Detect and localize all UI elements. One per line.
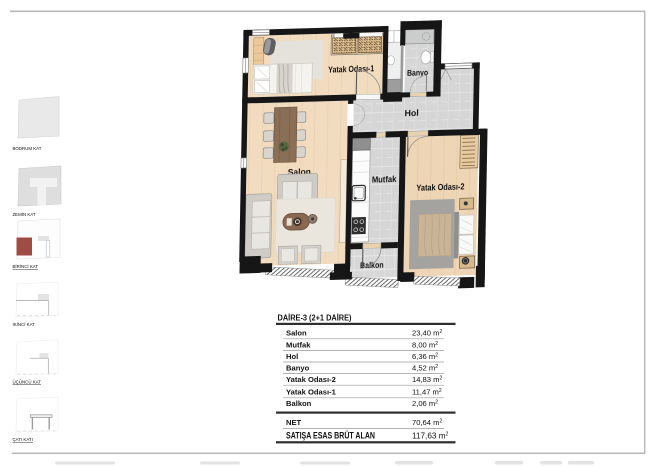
svg-text:Hol: Hol: [404, 108, 418, 118]
svg-text:Banyo: Banyo: [407, 67, 428, 78]
svg-text:11,47 m2: 11,47 m2: [412, 388, 442, 397]
svg-text:14,83 m2: 14,83 m2: [412, 375, 442, 384]
svg-text:23,40 m2: 23,40 m2: [412, 329, 442, 338]
svg-text:BİRİNCİ KAT: BİRİNCİ KAT: [13, 264, 39, 269]
svg-text:SATIŞA ESAS BRÜT ALAN: SATIŞA ESAS BRÜT ALAN: [286, 430, 375, 440]
svg-text:4,52 m2: 4,52 m2: [412, 364, 438, 373]
svg-text:ZEMİN KAT: ZEMİN KAT: [13, 212, 36, 217]
svg-text:2,06 m2: 2,06 m2: [412, 399, 438, 408]
svg-text:8,00 m2: 8,00 m2: [412, 340, 438, 349]
svg-text:70,64 m2: 70,64 m2: [412, 418, 442, 427]
svg-text:Salon: Salon: [286, 329, 307, 338]
svg-text:Balkon: Balkon: [360, 260, 384, 271]
svg-text:Yatak Odası-1: Yatak Odası-1: [286, 388, 337, 397]
svg-text:Mutfak: Mutfak: [372, 174, 397, 185]
svg-text:NET: NET: [286, 418, 302, 427]
svg-text:Yatak Odası-2: Yatak Odası-2: [416, 181, 464, 192]
svg-text:Banyo: Banyo: [286, 364, 310, 373]
svg-text:BODRUM KAT: BODRUM KAT: [13, 146, 42, 151]
svg-text:Hol: Hol: [286, 352, 298, 361]
svg-text:Yatak Odası-2: Yatak Odası-2: [286, 375, 336, 384]
svg-text:6,36 m2: 6,36 m2: [412, 352, 438, 361]
svg-text:İKİNCİ KAT: İKİNCİ KAT: [13, 322, 36, 327]
svg-text:117,63 m2: 117,63 m2: [412, 431, 449, 440]
svg-text:ÇATI KATI: ÇATI KATI: [13, 437, 33, 442]
svg-text:ÜÇÜNCÜ KAT: ÜÇÜNCÜ KAT: [13, 380, 42, 385]
svg-text:DAİRE-3 (2+1 DAİRE): DAİRE-3 (2+1 DAİRE): [278, 314, 352, 323]
svg-text:Mutfak: Mutfak: [286, 340, 311, 349]
svg-text:Balkon: Balkon: [286, 399, 312, 408]
